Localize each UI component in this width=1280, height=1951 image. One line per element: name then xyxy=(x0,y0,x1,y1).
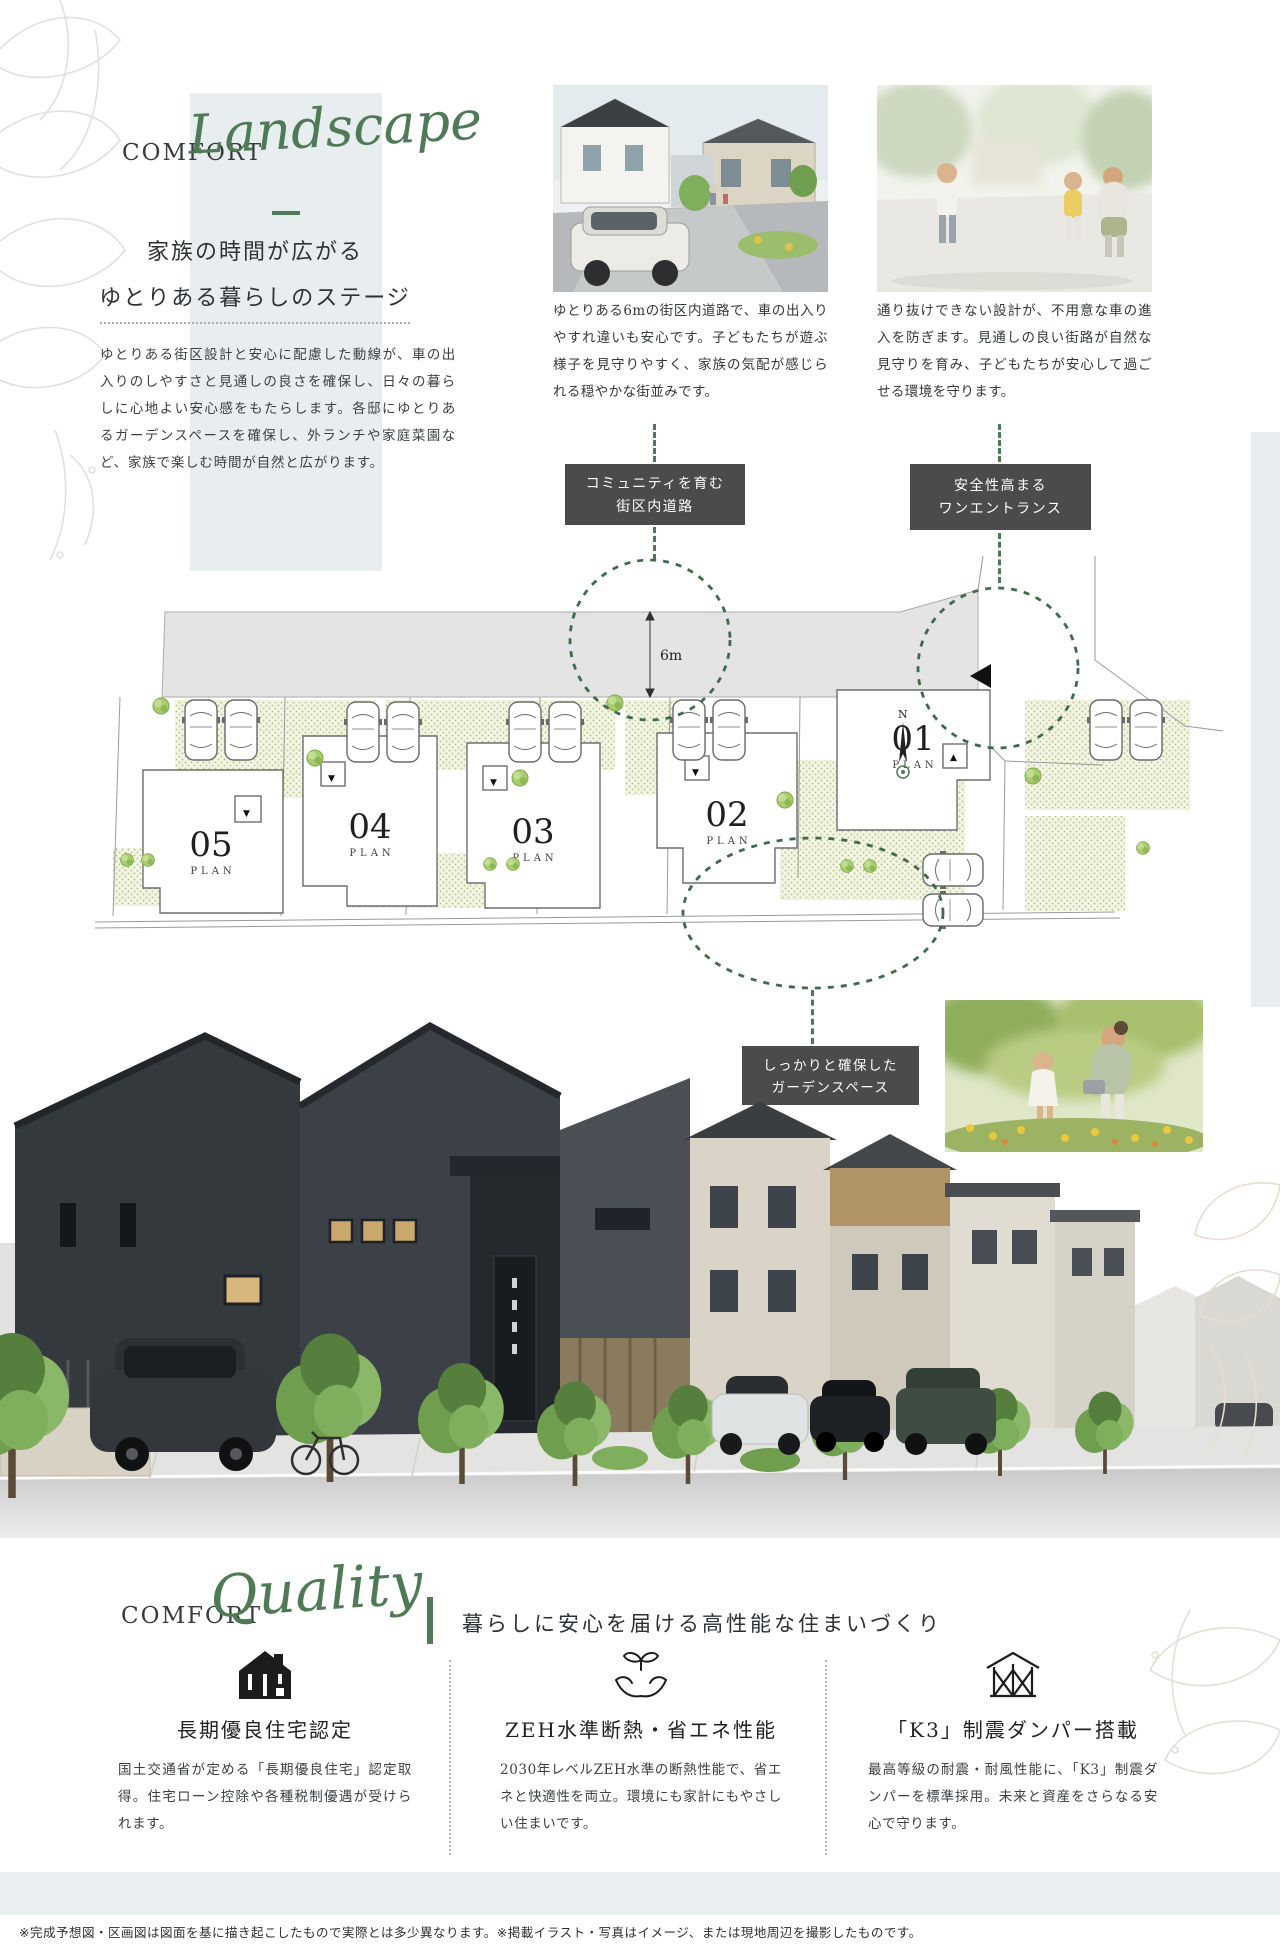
family-photo-illustration xyxy=(877,85,1152,292)
feature-body: 2030年レベルZEH水準の断熱性能で、省エネと快適性を両立。環境にも家計にもや… xyxy=(500,1757,782,1838)
certified-house-icon xyxy=(238,1650,292,1700)
feature-zeh-insulation: ZEH水準断熱・省エネ性能 2030年レベルZEH水準の断熱性能で、省エネと快適… xyxy=(500,1650,782,1838)
landscape-title-line1: 家族の時間が広がる xyxy=(85,234,425,266)
svg-text:▼: ▼ xyxy=(328,774,335,784)
photo-family-street xyxy=(877,85,1152,292)
feature-title: 長期優良住宅認定 xyxy=(118,1714,412,1743)
plot-number: 01 xyxy=(891,719,934,759)
plot-number: 05 xyxy=(189,825,232,865)
quality-script-title: Quality xyxy=(208,1549,425,1632)
plot-number: 02 xyxy=(705,795,748,835)
landscape-title-line2: ゆとりある暮らしのステージ xyxy=(85,280,425,312)
plot-plan-word: PLAN xyxy=(190,866,235,877)
callout-road-line1: コミュニティを育む xyxy=(565,473,745,496)
plot-plan-word: PLAN xyxy=(706,836,751,847)
leaf-line-art-right xyxy=(1150,1165,1280,1465)
hands-leaf-icon xyxy=(613,1650,669,1700)
footer-disclaimer: ※完成予想図・区画図は図面を基に描き起こしたもので実際とは多少異なります。※掲載… xyxy=(19,1922,1269,1941)
feature-divider xyxy=(825,1660,827,1855)
feature-k3-damper: 「K3」制震ダンパー搭載 最高等級の耐震・耐風性能に、「K3」制震ダンパーを標準… xyxy=(868,1650,1158,1838)
feature-body: 最高等級の耐震・耐風性能に、「K3」制震ダンパーを標準採用。未来と資産をさらなる… xyxy=(868,1757,1158,1838)
callout-road-line2: 街区内道路 xyxy=(565,496,745,519)
feature-divider xyxy=(449,1660,451,1855)
photo-street-road xyxy=(553,85,828,292)
street-rendering xyxy=(0,1008,1280,1538)
callout-entrance-line1: 安全性高まる xyxy=(910,475,1091,498)
dotted-divider xyxy=(100,322,410,324)
heading-accent-bar xyxy=(427,1597,433,1644)
feature-body: 国土交通省が定める「長期優良住宅」認定取得。住宅ローン控除や各種税制優遇が受けら… xyxy=(118,1757,412,1838)
road-width-label: 6m xyxy=(660,648,682,664)
connector-entrance-top xyxy=(998,424,1001,462)
callout-road: コミュニティを育む 街区内道路 xyxy=(565,464,745,525)
feature-long-term-housing: 長期優良住宅認定 国土交通省が定める「長期優良住宅」認定取得。住宅ローン控除や各… xyxy=(118,1650,412,1838)
footer-band xyxy=(0,1872,1280,1915)
svg-text:▲: ▲ xyxy=(950,753,957,763)
photo2-caption: 通り抜けできない設計が、不用意な車の進入を防ぎます。見通しの良い街路が自然な見守… xyxy=(877,298,1152,406)
svg-text:▼: ▼ xyxy=(490,778,497,788)
plot-plan-word: PLAN xyxy=(349,848,394,859)
feature-title: 「K3」制震ダンパー搭載 xyxy=(868,1714,1158,1743)
plot-number: 03 xyxy=(511,812,554,852)
right-edge-band xyxy=(1251,432,1280,1007)
accent-dash xyxy=(272,211,300,215)
svg-text:▼: ▼ xyxy=(243,809,250,819)
svg-text:▼: ▼ xyxy=(692,768,699,778)
plot-number: 04 xyxy=(348,807,391,847)
feature-title: ZEH水準断熱・省エネ性能 xyxy=(500,1714,782,1743)
connector-road-top xyxy=(653,424,656,462)
callout-entrance-line2: ワンエントランス xyxy=(910,498,1091,521)
damper-frame-icon xyxy=(985,1650,1041,1700)
site-plan-diagram: 6m ▼▼▼▼▲ 05 PLAN 04 PLAN 03 PLAN 0 xyxy=(85,548,1225,1018)
brochure-page: COMFORT Landscape 家族の時間が広がる ゆとりある暮らしのステー… xyxy=(0,0,1280,1951)
street-photo-illustration xyxy=(553,85,828,292)
photo1-caption: ゆとりある6mの街区内道路で、車の出入りやすれ違いも安心です。子どもたちが遊ぶ様… xyxy=(553,298,828,406)
landscape-body-text: ゆとりある街区設計と安心に配慮した動線が、車の出入りのしやすさと見通しの良さを確… xyxy=(100,342,456,477)
quality-heading: 暮らしに安心を届ける高性能な住まいづくり xyxy=(462,1608,942,1638)
svg-text:N: N xyxy=(898,708,908,721)
callout-entrance: 安全性高まる ワンエントランス xyxy=(910,464,1091,530)
